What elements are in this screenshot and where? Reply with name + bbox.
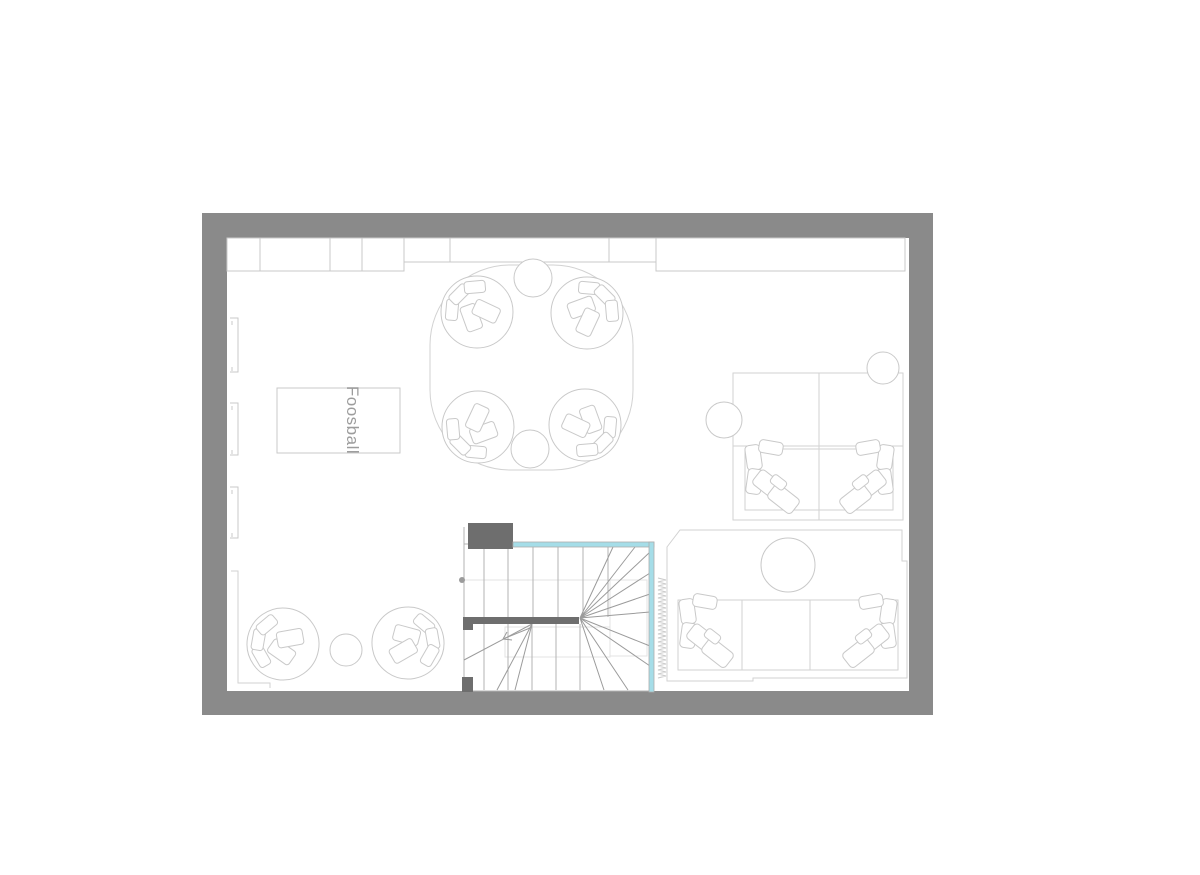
handrail-post: [459, 577, 465, 583]
stool: [514, 259, 552, 297]
tub-chair: [534, 374, 636, 476]
glass-balustrade: [649, 542, 654, 692]
window: [230, 318, 238, 372]
floor-plan-page: Foosball: [0, 0, 1200, 875]
foosball-label: Foosball: [343, 386, 362, 454]
window: [230, 403, 238, 455]
floor-plan-drawing: Foosball: [0, 0, 1200, 875]
stair-winders: [580, 547, 650, 690]
landing-wall: [463, 617, 579, 624]
window: [230, 487, 238, 538]
lounge-chair: [678, 593, 734, 669]
stair-direction-arrow: [503, 628, 530, 640]
planter: [706, 402, 742, 438]
stair-wall-block: [468, 523, 513, 549]
round-lounge-group: [426, 259, 638, 478]
lounge-chair: [744, 439, 800, 515]
side-table: [330, 634, 362, 666]
tub-chair: [241, 602, 324, 685]
staircase: [459, 523, 654, 692]
lounge-chair: [838, 439, 894, 515]
stool: [511, 430, 549, 468]
tub-chair: [366, 601, 449, 684]
upper-right-seating: [706, 352, 903, 520]
bottom-left-seating: [241, 601, 449, 685]
lounge-chair: [841, 593, 897, 669]
bottom-right-seating: [667, 530, 907, 681]
foosball-table: Foosball: [277, 386, 400, 454]
curtain: [658, 578, 666, 678]
tub-chair: [426, 261, 528, 363]
tub-chair: [427, 376, 529, 478]
glass-balustrade: [513, 542, 654, 547]
coffee-table: [761, 538, 815, 592]
stair-wall-stub: [462, 677, 473, 692]
planter: [867, 352, 899, 384]
